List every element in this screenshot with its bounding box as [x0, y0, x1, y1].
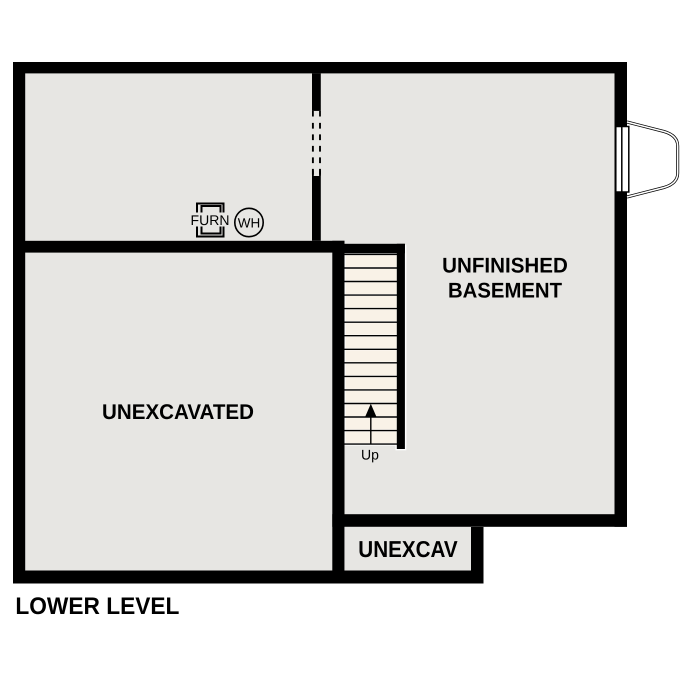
svg-text:BASEMENT: BASEMENT	[448, 279, 562, 303]
svg-text:UNFINISHED: UNFINISHED	[442, 253, 568, 277]
svg-text:LOWER LEVEL: LOWER LEVEL	[15, 593, 179, 620]
svg-text:FURN: FURN	[191, 212, 230, 228]
svg-text:UNEXCAVATED: UNEXCAVATED	[102, 400, 254, 424]
svg-text:Up: Up	[361, 447, 379, 463]
svg-text:WH: WH	[238, 216, 261, 231]
svg-text:UNEXCAV: UNEXCAV	[358, 536, 458, 562]
